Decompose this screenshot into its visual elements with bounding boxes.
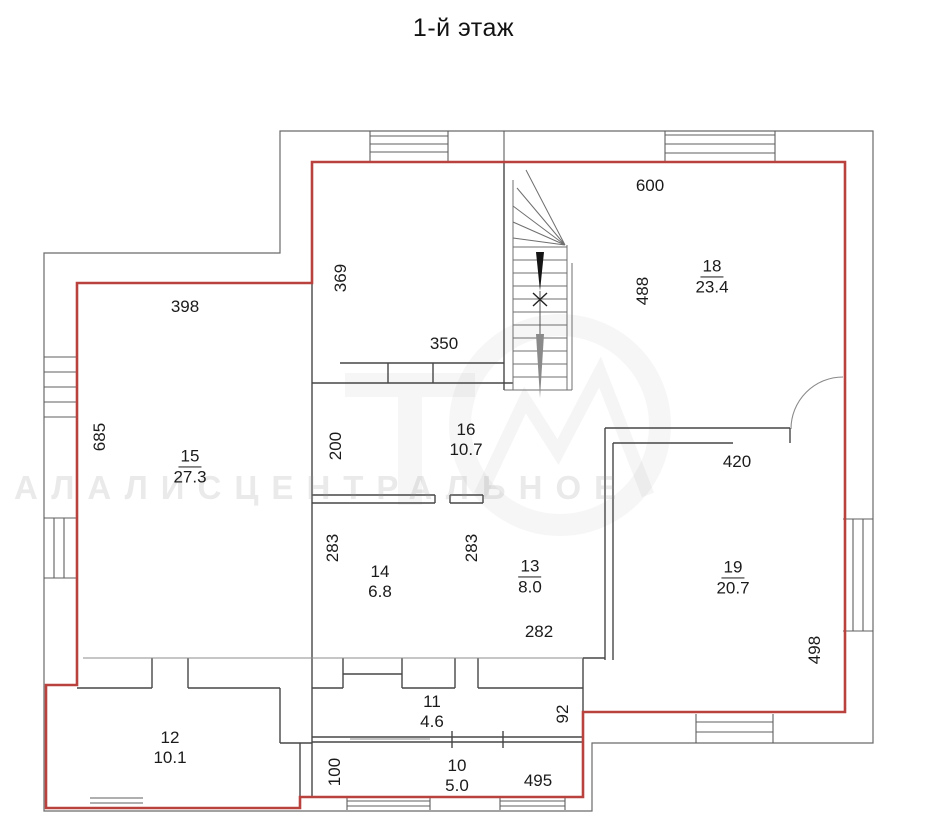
room-16-number: 16 [457,420,476,440]
room-15-area: 27.3 [173,468,206,488]
watermark-text: АЛАЛИСЦЕНТРАЛЬНОЕ [14,469,914,507]
dim-282: 282 [525,622,553,642]
room-16-label: 1610.7 [449,420,482,460]
dim-420: 420 [723,452,751,472]
dim-283-mid: 283 [462,534,482,562]
dim-495: 495 [524,771,552,791]
room-13-area: 8.0 [518,578,542,598]
room-18-area: 23.4 [695,278,728,298]
room-19-label: 1920.7 [716,557,749,598]
dim-600: 600 [636,176,664,196]
room-11-number: 11 [423,692,441,712]
dim-92: 92 [553,705,573,724]
room-10-area: 5.0 [445,776,469,796]
room-14-label: 146.8 [368,562,392,602]
room-12-number: 12 [161,728,180,748]
room-15-number: 15 [179,446,202,467]
room-14-area: 6.8 [368,582,392,602]
dim-488: 488 [633,277,653,305]
dim-350: 350 [430,334,458,354]
dim-200: 200 [326,432,346,460]
thin-lines [83,658,583,739]
room-16-area: 10.7 [449,440,482,460]
dim-685: 685 [90,423,110,451]
stair-arrow-down-icon [536,252,544,291]
room-13-label: 138.0 [518,556,542,597]
room-19-number: 19 [722,557,745,578]
room-12-label: 1210.1 [153,728,186,768]
dim-369: 369 [331,264,351,292]
room-10-label: 105.0 [445,756,469,796]
dim-283-left: 283 [323,534,343,562]
room-18-label: 1823.4 [695,256,728,297]
floor-plan-drawing [0,0,927,817]
dim-100: 100 [325,758,345,786]
room-10-number: 10 [448,756,467,776]
door-arc [791,377,843,429]
room-13-number: 13 [519,556,542,577]
room-12-area: 10.1 [153,748,186,768]
room-18-number: 18 [701,256,724,277]
dim-498: 498 [805,636,825,664]
room-14-number: 14 [371,562,390,582]
room-15-label: 1527.3 [173,446,206,487]
floor-plan-page: 1-й этаж [0,0,927,817]
room-11-area: 4.6 [420,712,444,732]
room-11-label: 114.6 [420,692,444,732]
stair-arrow-up-icon [536,334,544,398]
room-19-area: 20.7 [716,579,749,599]
dim-398: 398 [171,297,199,317]
